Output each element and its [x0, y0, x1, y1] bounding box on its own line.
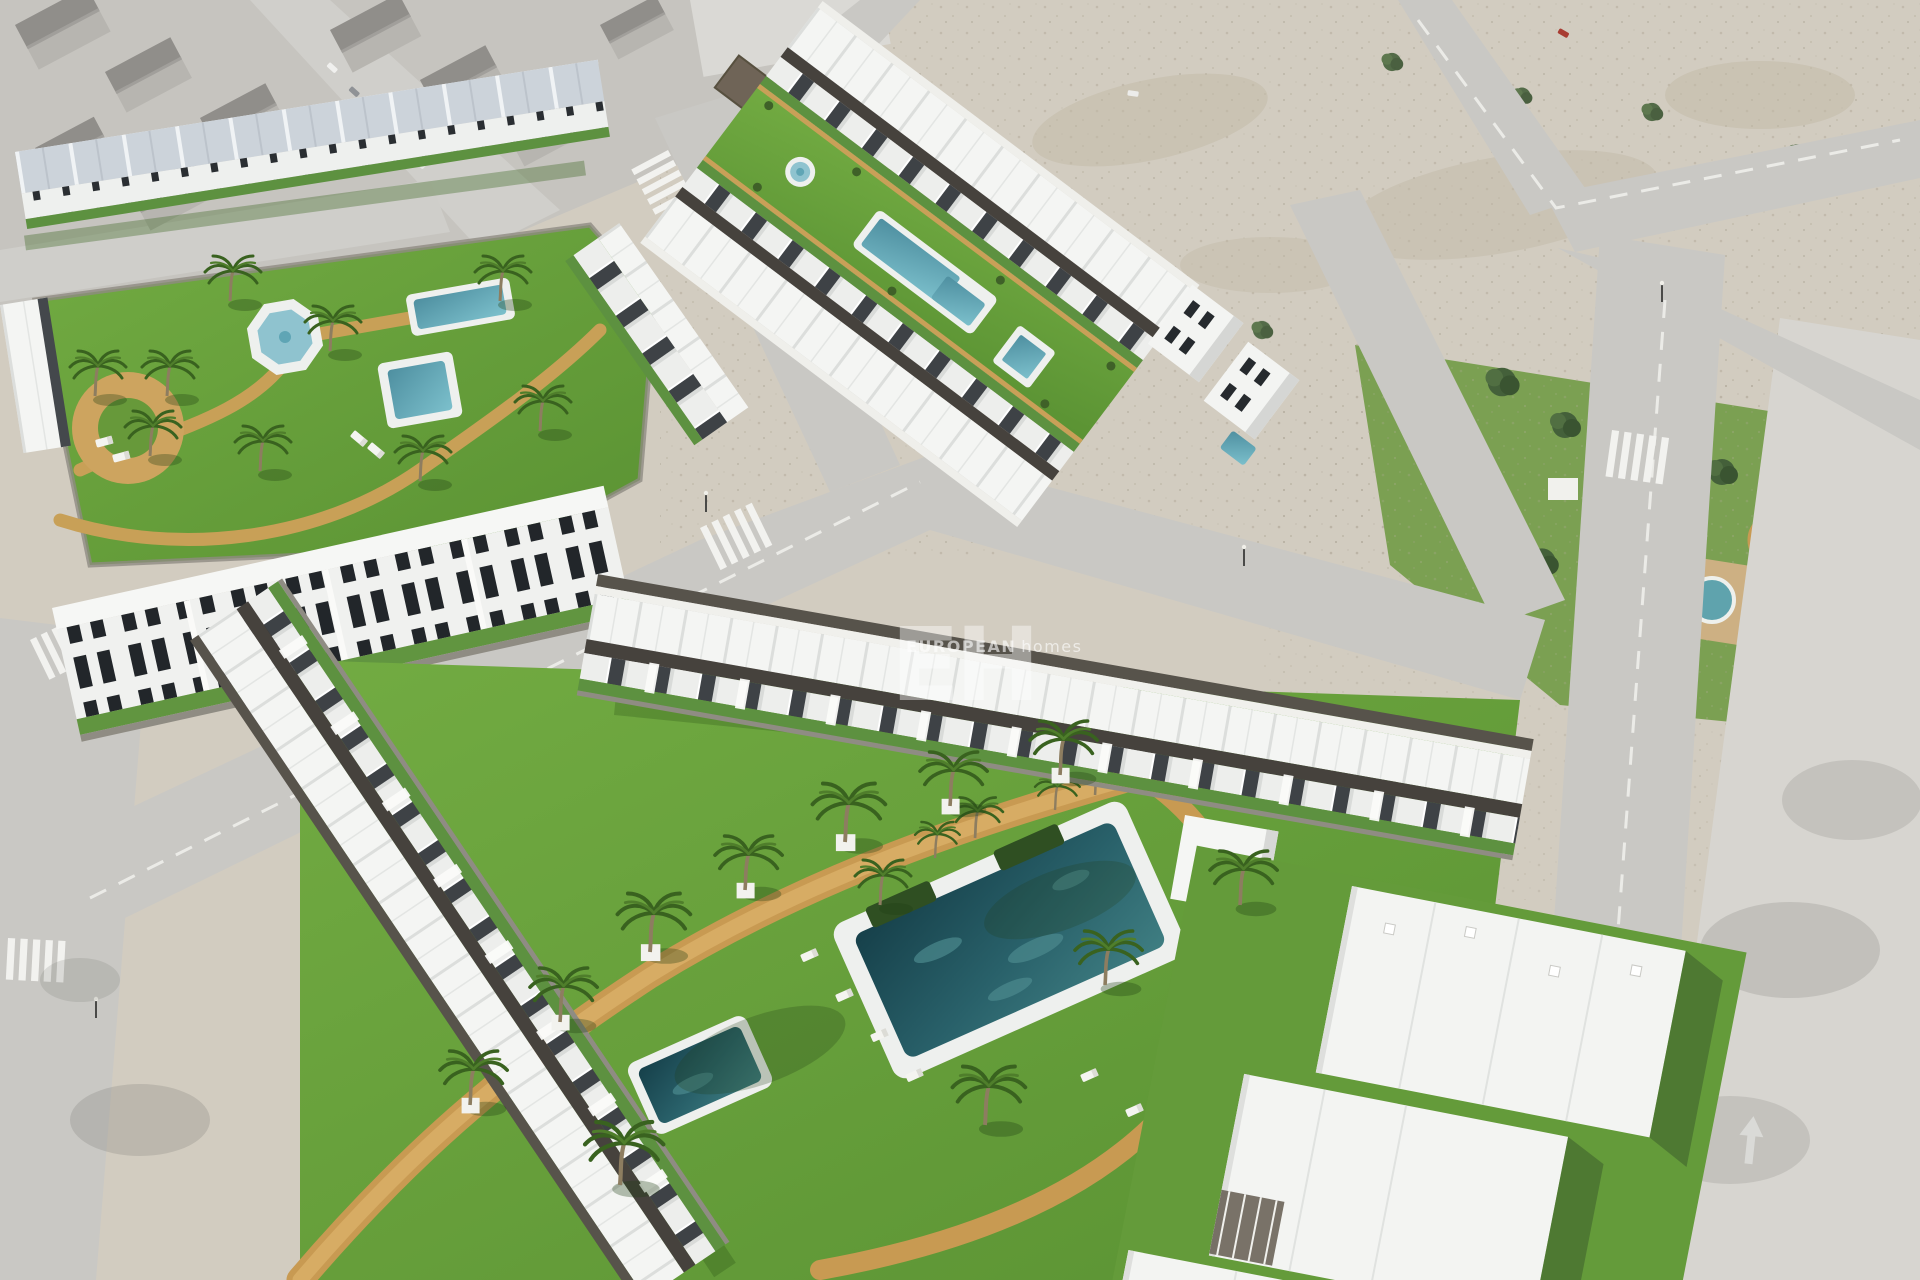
aerial-render: EH EUROPEANhomes	[0, 0, 1920, 1280]
watermark-brand-lower: homes	[1021, 637, 1082, 656]
watermark-brand: EUROPEANhomes	[906, 637, 1082, 656]
watermark-brand-caps: EUROPEAN	[906, 637, 1016, 656]
park-kiosk	[1548, 478, 1578, 500]
garden-lap-pool	[377, 351, 463, 429]
watermark-initials: EH	[890, 606, 1035, 725]
render-canvas: EH EUROPEANhomes	[0, 0, 1920, 1280]
